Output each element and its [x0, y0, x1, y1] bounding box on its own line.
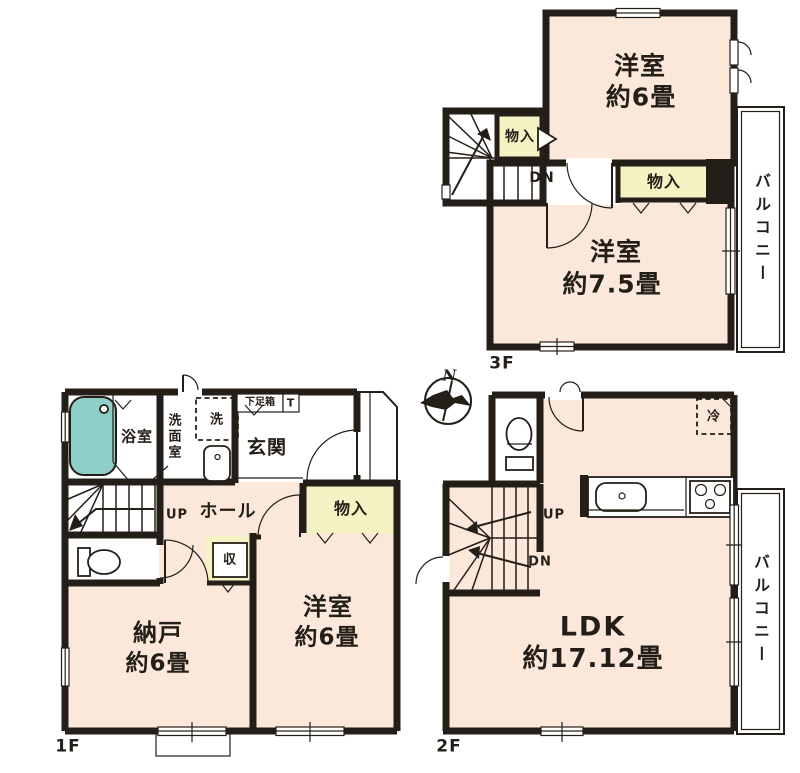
storage-label-1f: 収: [223, 554, 237, 567]
kitchen-counter: [580, 475, 734, 517]
stairs-down-label-3f: DN: [529, 171, 554, 185]
shoe-box-t-label: T: [287, 398, 296, 409]
stairs-up-label-1f: UP: [166, 509, 188, 522]
ldk-name-label: LDK: [560, 614, 627, 641]
floor-label-1f: 1F: [55, 739, 80, 756]
room-b-name-3f: 洋室: [590, 240, 642, 265]
room-b-size-3f: 約7.5畳: [562, 272, 661, 297]
closet-b-label-3f: 物入: [647, 174, 681, 190]
balcony-label-3f: バルコニー: [753, 173, 769, 288]
floor-label-3f: 3F: [489, 356, 514, 373]
hall-label: ホール: [200, 503, 257, 521]
room-name-label-1f: 洋室: [303, 595, 353, 619]
closet-label-1f: 物入: [334, 501, 368, 517]
storeroom-name-label: 納戸: [133, 621, 183, 645]
washroom-label: 洗面室: [167, 413, 180, 461]
washer-label: 洗: [210, 414, 224, 427]
floorplan-canvas: 洋室 約6畳 物入 DN 物入 洋室 約7.5畳 バルコニー 3F N 浴室 洗…: [0, 0, 800, 773]
floorplan-drawing: [0, 0, 800, 773]
room-a-name-3f: 洋室: [614, 54, 666, 79]
closet-a-label-3f: 物入: [505, 130, 535, 144]
room-a-size-3f: 約6畳: [606, 85, 676, 110]
ldk-size-label: 約17.12畳: [522, 646, 663, 672]
toilet-2f: [506, 418, 533, 470]
bath-label: 浴室: [121, 430, 153, 445]
compass-north-label: N: [443, 369, 458, 384]
storeroom-size-label: 約6畳: [125, 653, 190, 676]
floor-2f-plan: [416, 382, 784, 742]
balcony-label-2f: バルコニー: [752, 554, 768, 669]
fridge-label: 冷: [707, 411, 721, 424]
stairs-down-label-2f: DN: [528, 556, 552, 569]
entrance-label: 玄関: [247, 439, 287, 458]
floor-label-2f: 2F: [436, 739, 461, 756]
compass-rose: [420, 378, 471, 424]
stairs-up-label-2f: UP: [543, 509, 565, 522]
shoe-box-label: 下足箱: [245, 398, 275, 408]
room-size-label-1f: 約6畳: [294, 627, 359, 650]
